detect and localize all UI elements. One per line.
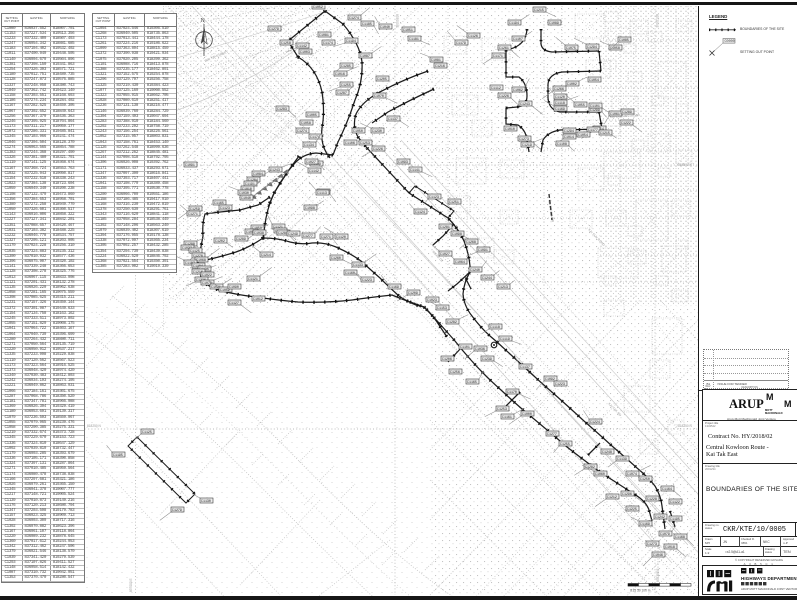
svg-text:C1061: C1061 [610, 113, 621, 117]
svg-text:C1202: C1202 [215, 240, 225, 244]
svg-text:C1222: C1222 [621, 122, 631, 126]
svg-text:C1108: C1108 [557, 143, 567, 147]
svg-text:C1165: C1165 [467, 381, 477, 385]
svg-text:C1282: C1282 [585, 466, 595, 470]
svg-text:C1060: C1060 [595, 473, 605, 477]
svg-text:C1223: C1223 [362, 279, 372, 283]
svg-text:C1161: C1161 [502, 416, 513, 420]
svg-text:C1209: C1209 [408, 292, 418, 296]
svg-text:C1120: C1120 [336, 236, 346, 240]
svg-text:C1206: C1206 [442, 358, 452, 362]
svg-text:C1282: C1282 [447, 321, 457, 325]
svg-text:C1023: C1023 [427, 299, 437, 303]
svg-text:C1142: C1142 [297, 45, 307, 49]
svg-text:C1058: C1058 [301, 122, 311, 126]
svg-text:C1142: C1142 [309, 170, 319, 174]
svg-text:C1279: C1279 [269, 28, 279, 32]
svg-text:C1075: C1075 [566, 47, 576, 51]
svg-text:C1214: C1214 [261, 254, 272, 258]
svg-text:C1137: C1137 [520, 366, 530, 370]
svg-text:C1251: C1251 [449, 201, 460, 205]
svg-text:C0000: C0000 [725, 40, 735, 44]
svg-text:C1010: C1010 [505, 128, 515, 132]
svg-text:C1279: C1279 [172, 509, 182, 513]
svg-text:C1205: C1205 [377, 78, 387, 82]
svg-text:C1242: C1242 [655, 516, 665, 520]
svg-text:C1215: C1215 [534, 9, 544, 13]
svg-text:C1092: C1092 [545, 378, 555, 382]
svg-text:C1260: C1260 [331, 257, 341, 261]
svg-text:C1012: C1012 [253, 298, 263, 302]
svg-text:C1123: C1123 [220, 207, 230, 211]
svg-text:818250 N: 818250 N [87, 424, 102, 428]
svg-text:C1101: C1101 [460, 346, 471, 350]
svg-text:C1212: C1212 [607, 496, 617, 500]
svg-text:C1256: C1256 [450, 371, 460, 375]
svg-text:C1164: C1164 [662, 488, 673, 492]
svg-text:C1087: C1087 [360, 55, 370, 59]
svg-text:C1215: C1215 [600, 132, 610, 136]
svg-text:C1277: C1277 [303, 235, 313, 239]
svg-text:C1036: C1036 [475, 348, 485, 352]
svg-text:C1038: C1038 [254, 232, 264, 236]
svg-text:C1070: C1070 [374, 95, 384, 99]
svg-text:C1074: C1074 [627, 473, 638, 477]
svg-text:C1160: C1160 [345, 272, 355, 276]
svg-text:C1081: C1081 [431, 59, 442, 63]
svg-text:C1030: C1030 [239, 192, 249, 196]
svg-text:C1101: C1101 [590, 105, 601, 109]
svg-text:C1296: C1296 [622, 493, 632, 497]
svg-text:C1118: C1118 [490, 326, 500, 330]
svg-text:C1230: C1230 [372, 130, 382, 134]
svg-text:C1064: C1064 [455, 261, 466, 265]
svg-text:C1289: C1289 [622, 111, 632, 115]
svg-text:C1091: C1091 [478, 249, 489, 253]
svg-text:C1223: C1223 [555, 383, 565, 387]
svg-text:C1016: C1016 [335, 73, 345, 77]
svg-text:C1120: C1120 [555, 96, 565, 100]
svg-text:C1213: C1213 [498, 286, 508, 290]
svg-text:C1255: C1255 [560, 443, 570, 447]
svg-text:C1185: C1185 [362, 23, 372, 27]
svg-text:C1130: C1130 [201, 500, 211, 504]
svg-text:C1107: C1107 [513, 38, 523, 42]
svg-text:C1226: C1226 [373, 148, 383, 152]
svg-text:C1127: C1127 [229, 302, 239, 306]
svg-text:C1085: C1085 [619, 39, 629, 43]
svg-text:C1112: C1112 [491, 87, 501, 91]
svg-text:C1273: C1273 [647, 543, 657, 547]
svg-text:C1261: C1261 [499, 47, 510, 51]
svg-text:C1194: C1194 [509, 22, 520, 26]
svg-text:C1003: C1003 [300, 51, 310, 55]
svg-text:C1277: C1277 [547, 433, 557, 437]
svg-text:C1294: C1294 [564, 130, 575, 134]
svg-text:C1271: C1271 [321, 236, 332, 240]
svg-text:C1299: C1299 [590, 109, 600, 113]
svg-text:C1052: C1052 [313, 6, 323, 10]
svg-text:818250 N: 818250 N [678, 424, 693, 428]
svg-text:C1002: C1002 [567, 83, 577, 87]
svg-text:C1169: C1169 [389, 286, 399, 290]
svg-text:C1124: C1124 [415, 211, 426, 215]
svg-text:C1005: C1005 [307, 114, 317, 118]
svg-text:C1014: C1014 [564, 136, 575, 140]
svg-text:C1195: C1195 [113, 454, 123, 458]
svg-text:C1216: C1216 [435, 65, 445, 69]
svg-text:C1249: C1249 [288, 233, 298, 237]
svg-text:C1224: C1224 [590, 421, 601, 425]
svg-text:C1050: C1050 [353, 130, 363, 134]
svg-text:C1055: C1055 [575, 104, 585, 108]
svg-text:C1119: C1119 [500, 338, 510, 342]
svg-text:C1285: C1285 [341, 65, 351, 69]
svg-text:C1239: C1239 [482, 358, 492, 362]
svg-text:C1248: C1248 [602, 451, 612, 455]
svg-text:C1168: C1168 [675, 536, 685, 540]
svg-text:C1179: C1179 [456, 42, 466, 46]
svg-text:C1090: C1090 [229, 286, 239, 290]
svg-text:C1281: C1281 [440, 226, 451, 230]
svg-text:818500 N: 818500 N [678, 163, 693, 167]
svg-text:C1054: C1054 [589, 79, 600, 83]
svg-text:C1169: C1169 [555, 108, 565, 112]
svg-text:C1174: C1174 [323, 42, 334, 46]
svg-text:C1169: C1169 [640, 523, 650, 527]
svg-text:C1018: C1018 [665, 546, 675, 550]
svg-text:C1225: C1225 [627, 508, 637, 512]
svg-text:C1133: C1133 [353, 264, 363, 268]
svg-text:C1181: C1181 [409, 38, 420, 42]
svg-text:C1122: C1122 [670, 501, 680, 505]
svg-text:C1027: C1027 [440, 253, 450, 257]
svg-text:0 25 50 100 m: 0 25 50 100 m [630, 589, 651, 593]
svg-text:C1000: C1000 [522, 413, 532, 417]
svg-text:C1079: C1079 [660, 533, 670, 537]
svg-text:C1121: C1121 [248, 278, 259, 282]
svg-text:C1195: C1195 [670, 518, 680, 522]
svg-text:C1274: C1274 [349, 17, 360, 21]
svg-text:C1081: C1081 [319, 34, 330, 38]
svg-text:C1153: C1153 [437, 307, 447, 311]
svg-text:C1040: C1040 [380, 26, 390, 30]
svg-text:837000 E: 837000 E [129, 578, 133, 592]
svg-text:C1068: C1068 [196, 259, 206, 263]
svg-text:C1240: C1240 [470, 269, 480, 273]
svg-text:C1289: C1289 [236, 238, 246, 242]
svg-text:C1194: C1194 [346, 40, 357, 44]
svg-text:C1273: C1273 [519, 138, 529, 142]
svg-text:C1062: C1062 [513, 89, 523, 93]
svg-text:C1123: C1123 [429, 196, 439, 200]
svg-text:C1271: C1271 [188, 213, 199, 217]
svg-text:C1098: C1098 [452, 233, 462, 237]
svg-text:C1084: C1084 [253, 173, 264, 177]
svg-text:C1294: C1294 [587, 46, 598, 50]
svg-text:C1089: C1089 [549, 22, 559, 26]
svg-text:C1098: C1098 [305, 207, 315, 211]
svg-text:C1243: C1243 [520, 103, 530, 107]
svg-text:C1171: C1171 [493, 55, 504, 59]
svg-text:C1137: C1137 [388, 118, 398, 122]
svg-text:N: N [201, 18, 205, 24]
svg-text:C1228: C1228 [647, 498, 657, 502]
svg-text:C1113: C1113 [317, 192, 327, 196]
svg-text:C1027: C1027 [306, 161, 316, 165]
svg-text:C1283: C1283 [277, 108, 287, 112]
svg-text:C1058: C1058 [610, 47, 620, 51]
svg-text:C1287: C1287 [337, 92, 347, 96]
svg-text:C1219: C1219 [522, 144, 532, 148]
svg-text:C1274: C1274 [297, 130, 308, 134]
svg-text:C1093: C1093 [398, 161, 408, 165]
svg-text:C1244: C1244 [482, 277, 493, 281]
svg-text:C1170: C1170 [507, 391, 517, 395]
svg-text:C1051: C1051 [403, 29, 414, 33]
svg-text:C1253: C1253 [497, 408, 507, 412]
svg-text:C1226: C1226 [499, 95, 509, 99]
svg-text:837250 E: 837250 E [655, 14, 659, 28]
svg-text:C1139: C1139 [617, 458, 627, 462]
svg-text:C1091: C1091 [185, 164, 196, 168]
svg-text:C1258: C1258 [281, 42, 291, 46]
svg-text:C1040: C1040 [241, 197, 251, 201]
svg-text:C1126: C1126 [468, 35, 478, 39]
svg-text:C1250: C1250 [640, 478, 650, 482]
svg-text:C1268: C1268 [466, 241, 476, 245]
svg-text:C1141: C1141 [410, 169, 421, 173]
svg-text:C1134: C1134 [304, 144, 315, 148]
svg-text:C1054: C1054 [578, 134, 589, 138]
svg-text:837000 E: 837000 E [395, 14, 399, 28]
svg-text:C1118: C1118 [555, 102, 565, 106]
svg-text:C1255: C1255 [341, 84, 351, 88]
svg-text:C1106: C1106 [345, 142, 355, 146]
svg-text:C1266: C1266 [554, 88, 564, 92]
svg-text:C1125: C1125 [142, 431, 152, 435]
svg-text:C1253: C1253 [360, 142, 370, 146]
